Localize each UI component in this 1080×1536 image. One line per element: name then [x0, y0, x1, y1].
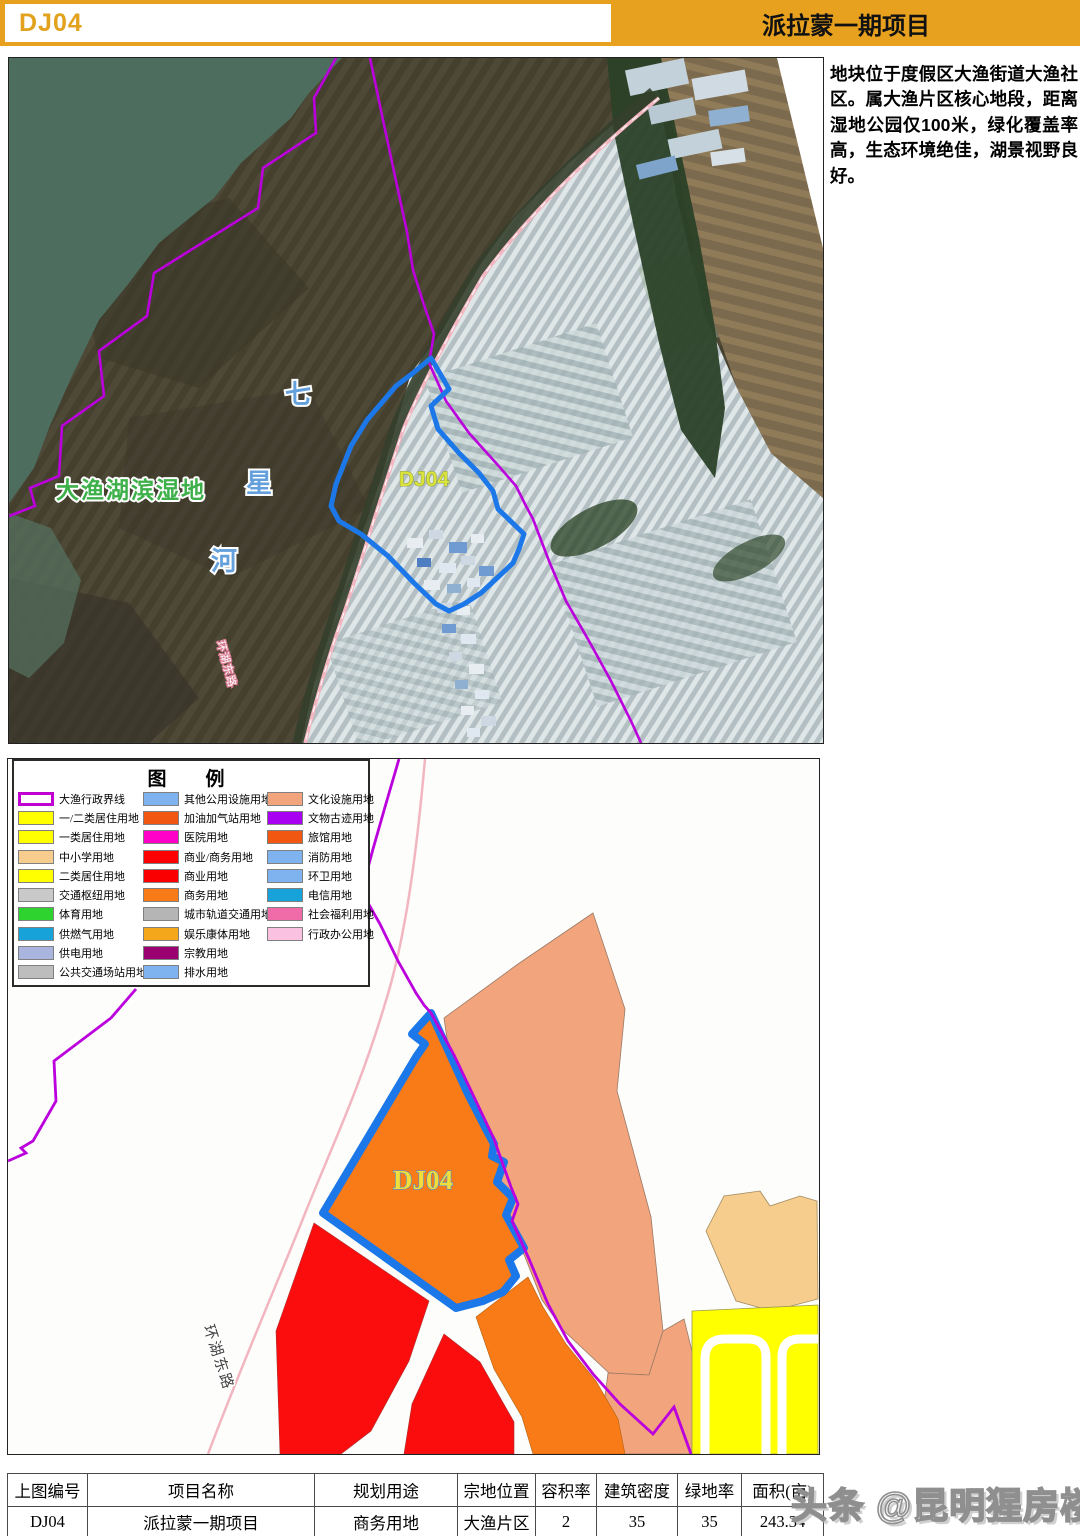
table-header-cell: 建筑密度	[597, 1474, 678, 1507]
info-table: 上图编号项目名称规划用途宗地位置容积率建筑密度绿地率面积(亩) DJ04派拉蒙一…	[7, 1473, 824, 1536]
table-header-cell: 绿地率	[678, 1474, 742, 1507]
zone-school	[706, 1191, 818, 1311]
legend-label: 其他公用设施用地	[184, 791, 272, 807]
legend-label: 文物古迹用地	[308, 810, 374, 826]
legend-item: 文化设施用地	[267, 789, 369, 808]
table-cell: 派拉蒙一期项目	[88, 1507, 315, 1536]
satellite-map: 大渔湖滨湿地 七 星 河 DJ04 环湖东路	[8, 57, 824, 744]
legend-swatch	[18, 850, 54, 864]
legend-item: 供燃气用地	[18, 924, 141, 943]
header-bar: DJ04 派拉蒙一期项目	[0, 0, 1080, 46]
admin-boundary-west-segment	[8, 989, 136, 1161]
legend-label: 文化设施用地	[308, 791, 374, 807]
table-body: DJ04派拉蒙一期项目商务用地大渔片区23535243.34	[8, 1507, 824, 1536]
legend-label: 消防用地	[308, 849, 352, 865]
legend-item: 消防用地	[267, 847, 369, 866]
plot-label-planning: DJ04	[393, 1165, 453, 1195]
legend-label: 大渔行政界线	[59, 791, 125, 807]
legend-item: 大渔行政界线	[18, 789, 141, 808]
legend-item: 环卫用地	[267, 866, 369, 885]
legend-label: 一/二类居住用地	[59, 810, 139, 826]
legend-swatch	[143, 946, 179, 960]
legend-label: 商业用地	[184, 868, 228, 884]
legend-label: 交通枢纽用地	[59, 887, 125, 903]
plot-code: DJ04	[19, 9, 83, 38]
legend-label: 公共交通场站用地	[59, 964, 147, 980]
legend-label: 体育用地	[59, 906, 103, 922]
legend-item: 商业/商务用地	[143, 847, 265, 866]
legend-swatch	[267, 927, 303, 941]
legend-swatch	[267, 811, 303, 825]
legend-label: 排水用地	[184, 964, 228, 980]
legend-item: 中小学用地	[18, 847, 141, 866]
legend-item: 供电用地	[18, 943, 141, 962]
legend-item: 城市轨道交通用地	[143, 905, 265, 924]
legend-swatch	[18, 946, 54, 960]
table-cell: 商务用地	[315, 1507, 458, 1536]
legend-item: 旅馆用地	[267, 828, 369, 847]
legend-swatch	[143, 792, 179, 806]
table-header-cell: 宗地位置	[458, 1474, 536, 1507]
legend-label: 宗教用地	[184, 945, 228, 961]
legend-label: 医院用地	[184, 829, 228, 845]
legend-item: 娱乐康体用地	[143, 924, 265, 943]
legend-swatch	[143, 927, 179, 941]
legend-item: 一类居住用地	[18, 828, 141, 847]
legend-swatch	[18, 927, 54, 941]
table-cell: 2	[536, 1507, 597, 1536]
legend-label: 中小学用地	[59, 849, 114, 865]
legend-swatch	[18, 907, 54, 921]
table-header-cell: 项目名称	[88, 1474, 315, 1507]
table-row: DJ04派拉蒙一期项目商务用地大渔片区23535243.34	[8, 1507, 824, 1536]
river-label-char: 七	[285, 380, 311, 409]
legend-item: 宗教用地	[143, 943, 265, 962]
legend-item: 体育用地	[18, 905, 141, 924]
table-cell: 35	[678, 1507, 742, 1536]
table-header-row: 上图编号项目名称规划用途宗地位置容积率建筑密度绿地率面积(亩)	[8, 1474, 824, 1507]
legend-label: 娱乐康体用地	[184, 926, 250, 942]
legend-swatch	[18, 792, 54, 806]
plot-description: 地块位于度假区大渔街道大渔社区。属大渔片区核心地段，距离湿地公园仅100米，绿化…	[830, 62, 1078, 189]
legend-item: 商务用地	[143, 885, 265, 904]
legend-swatch	[267, 869, 303, 883]
legend-label: 社会福利用地	[308, 906, 374, 922]
table-header-cell: 容积率	[536, 1474, 597, 1507]
plot-label-satellite: DJ04	[399, 468, 450, 491]
legend-label: 加油加气站用地	[184, 810, 261, 826]
legend-swatch	[18, 811, 54, 825]
legend-swatch	[18, 830, 54, 844]
wetland-label: 大渔湖滨湿地	[56, 477, 206, 503]
legend-swatch	[143, 830, 179, 844]
legend-swatch	[143, 869, 179, 883]
legend-item: 公共交通场站用地	[18, 963, 141, 982]
legend-item: 医院用地	[143, 828, 265, 847]
legend-swatch	[267, 907, 303, 921]
legend-label: 供燃气用地	[59, 926, 114, 942]
river-label-char: 河	[211, 547, 237, 576]
legend-column: 文化设施用地文物古迹用地旅馆用地消防用地环卫用地电信用地社会福利用地行政办公用地	[267, 789, 369, 943]
table-cell: 大渔片区	[458, 1507, 536, 1536]
table-cell: 35	[597, 1507, 678, 1536]
zone-residential	[692, 1305, 818, 1454]
legend-swatch	[267, 888, 303, 902]
legend-label: 旅馆用地	[308, 829, 352, 845]
legend-item: 一/二类居住用地	[18, 808, 141, 827]
legend-swatch	[18, 888, 54, 902]
watermark: 头条 @昆明猩房楼市	[791, 1477, 1080, 1529]
legend-swatch	[18, 965, 54, 979]
legend-swatch	[143, 811, 179, 825]
legend-label: 供电用地	[59, 945, 103, 961]
road-label-planning: 环湖东路	[200, 1323, 237, 1393]
legend-swatch	[143, 888, 179, 902]
legend-label: 电信用地	[308, 887, 352, 903]
page-title: 派拉蒙一期项目	[612, 0, 1080, 46]
legend-swatch	[267, 792, 303, 806]
legend-item: 电信用地	[267, 885, 369, 904]
legend-item: 文物古迹用地	[267, 808, 369, 827]
legend-swatch	[18, 869, 54, 883]
legend-item: 社会福利用地	[267, 905, 369, 924]
legend-item: 排水用地	[143, 963, 265, 982]
legend-label: 行政办公用地	[308, 926, 374, 942]
page: DJ04 派拉蒙一期项目	[0, 0, 1080, 1536]
legend-item: 二类居住用地	[18, 866, 141, 885]
legend-label: 城市轨道交通用地	[184, 906, 272, 922]
table-cell: DJ04	[8, 1507, 88, 1536]
river-label-char: 星	[246, 469, 272, 498]
legend-item: 加油加气站用地	[143, 808, 265, 827]
legend-swatch	[267, 850, 303, 864]
legend-item: 商业用地	[143, 866, 265, 885]
legend-swatch	[143, 907, 179, 921]
legend-item: 其他公用设施用地	[143, 789, 265, 808]
legend-label: 二类居住用地	[59, 868, 125, 884]
table-header-cell: 规划用途	[315, 1474, 458, 1507]
plot-code-box: DJ04	[5, 4, 611, 42]
legend-item: 交通枢纽用地	[18, 885, 141, 904]
legend-swatch	[267, 830, 303, 844]
legend-column: 大渔行政界线一/二类居住用地一类居住用地中小学用地二类居住用地交通枢纽用地体育用…	[18, 789, 141, 982]
legend-swatch	[143, 850, 179, 864]
legend-label: 一类居住用地	[59, 829, 125, 845]
table-header-cell: 上图编号	[8, 1474, 88, 1507]
legend-swatch	[143, 965, 179, 979]
legend-box: 图 例 大渔行政界线一/二类居住用地一类居住用地中小学用地二类居住用地交通枢纽用…	[12, 759, 370, 987]
legend-label: 商务用地	[184, 887, 228, 903]
legend-label: 商业/商务用地	[184, 849, 253, 865]
legend-item: 行政办公用地	[267, 924, 369, 943]
legend-label: 环卫用地	[308, 868, 352, 884]
legend-column: 其他公用设施用地加油加气站用地医院用地商业/商务用地商业用地商务用地城市轨道交通…	[143, 789, 265, 982]
satellite-map-image: 大渔湖滨湿地 七 星 河 DJ04 环湖东路	[9, 58, 823, 743]
legend-title: 图 例	[14, 764, 368, 791]
